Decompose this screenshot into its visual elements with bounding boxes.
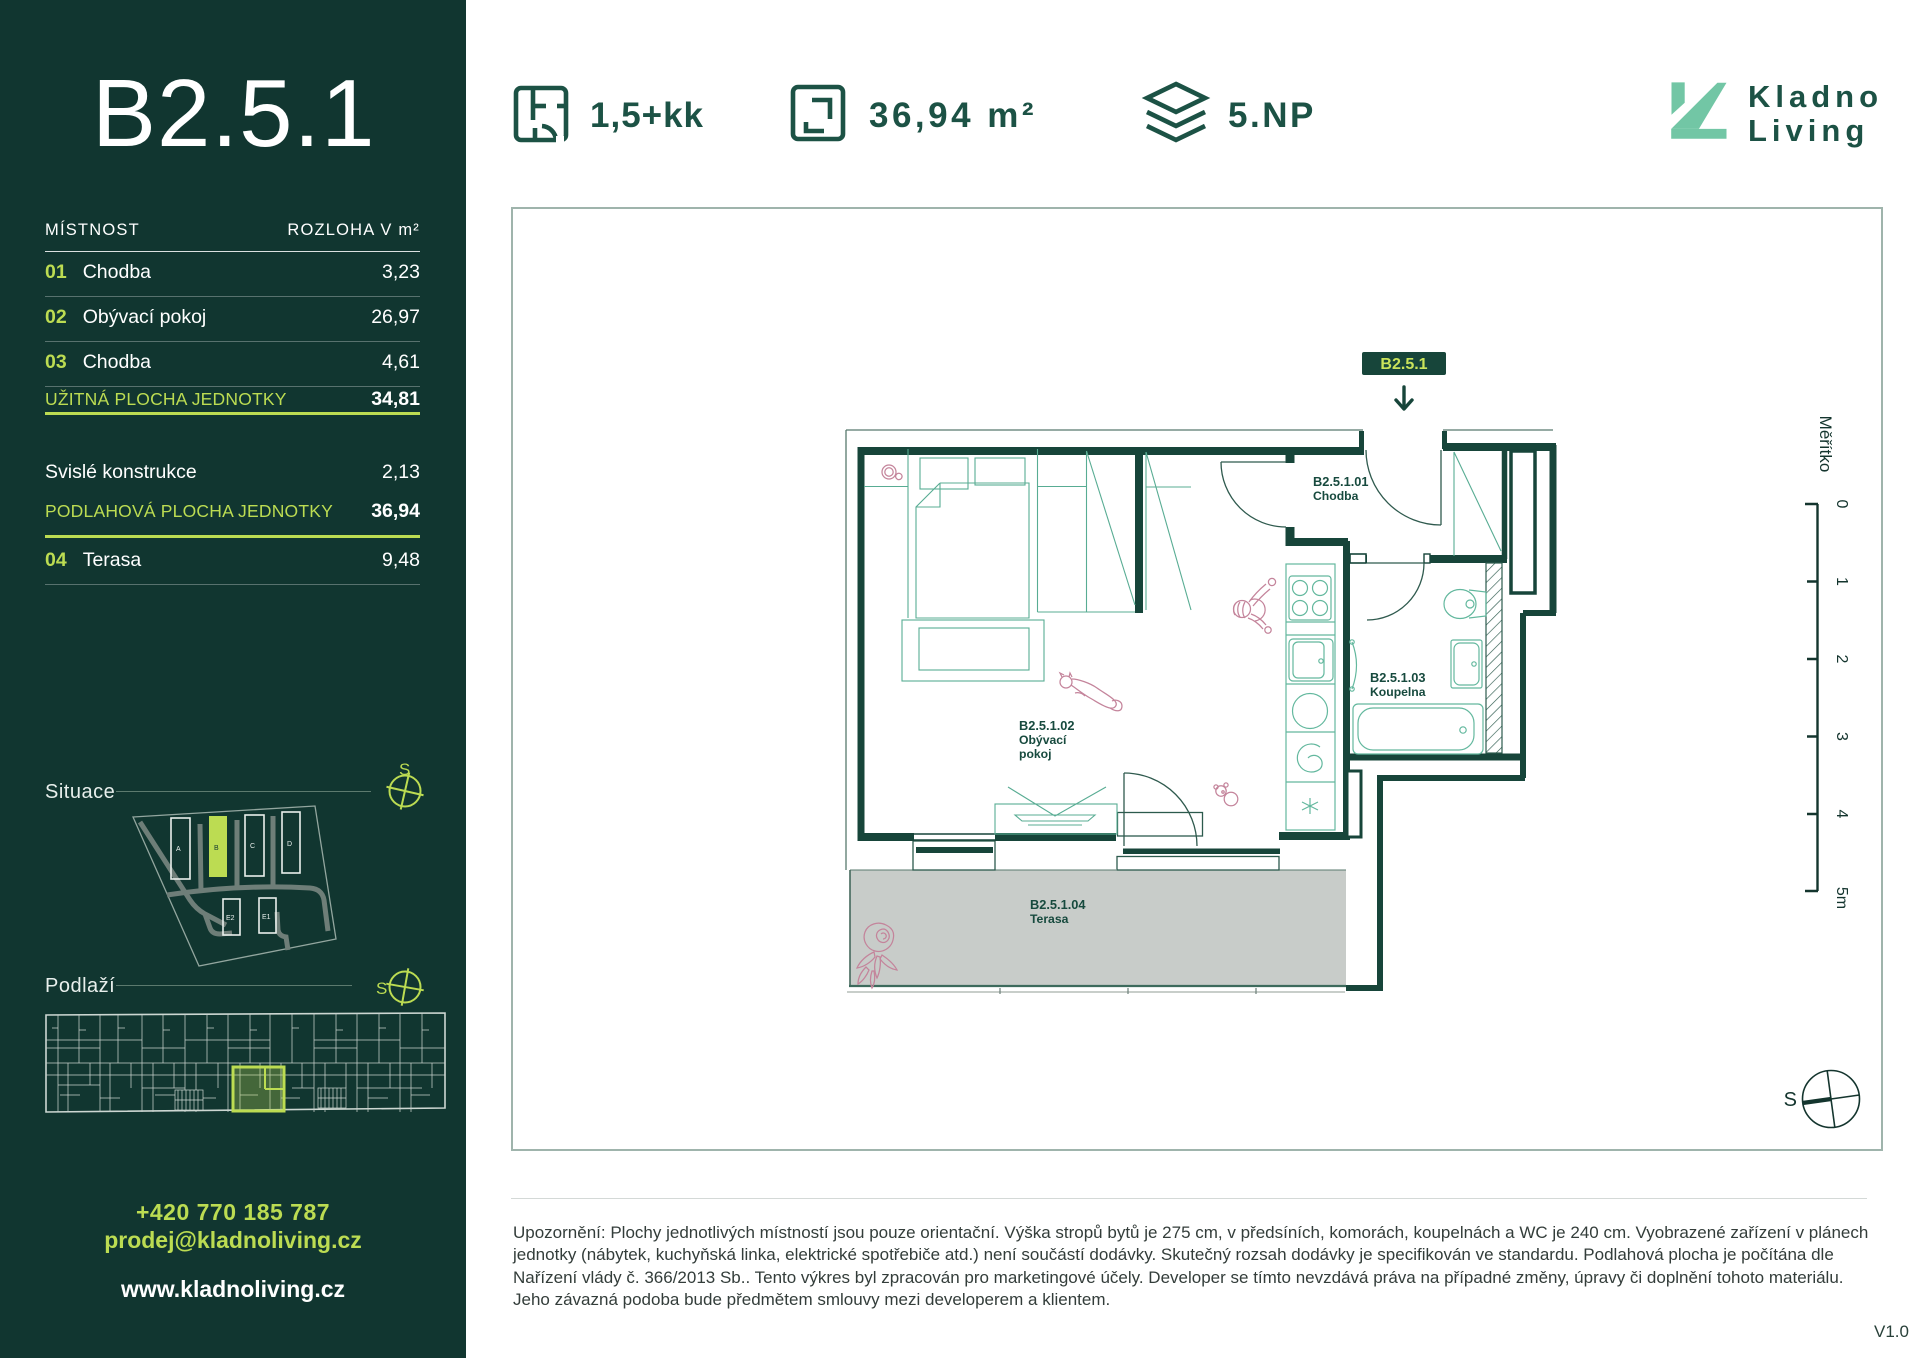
svg-text:Chodba: Chodba bbox=[1313, 489, 1359, 503]
svg-text:4: 4 bbox=[1833, 810, 1850, 819]
svg-text:B: B bbox=[214, 845, 219, 852]
svg-text:3: 3 bbox=[1833, 732, 1850, 741]
svg-text:B2.5.1.01: B2.5.1.01 bbox=[1313, 474, 1369, 489]
svg-text:B2.5.1: B2.5.1 bbox=[1380, 356, 1427, 373]
svg-text:Terasa: Terasa bbox=[1030, 912, 1069, 926]
svg-text:Obývací: Obývací bbox=[1019, 733, 1067, 747]
svg-text:2: 2 bbox=[1833, 655, 1850, 664]
svg-text:S: S bbox=[399, 760, 410, 779]
svg-text:D: D bbox=[287, 841, 292, 848]
svg-text:5m: 5m bbox=[1833, 887, 1850, 909]
svg-text:S: S bbox=[376, 979, 387, 998]
svg-text:A: A bbox=[176, 846, 181, 853]
svg-text:E1: E1 bbox=[262, 914, 271, 921]
svg-text:C: C bbox=[250, 843, 255, 850]
svg-text:0: 0 bbox=[1833, 500, 1850, 509]
svg-text:1: 1 bbox=[1833, 577, 1850, 586]
svg-text:E2: E2 bbox=[226, 915, 235, 922]
svg-text:B2.5.1.04: B2.5.1.04 bbox=[1030, 897, 1086, 912]
svg-text:S: S bbox=[1784, 1089, 1797, 1111]
svg-text:pokoj: pokoj bbox=[1019, 747, 1052, 761]
svg-text:B2.5.1.03: B2.5.1.03 bbox=[1370, 670, 1426, 685]
svg-text:Měřítko: Měřítko bbox=[1816, 416, 1835, 473]
svg-text:Koupelna: Koupelna bbox=[1370, 685, 1426, 699]
svg-text:B2.5.1.02: B2.5.1.02 bbox=[1019, 718, 1075, 733]
